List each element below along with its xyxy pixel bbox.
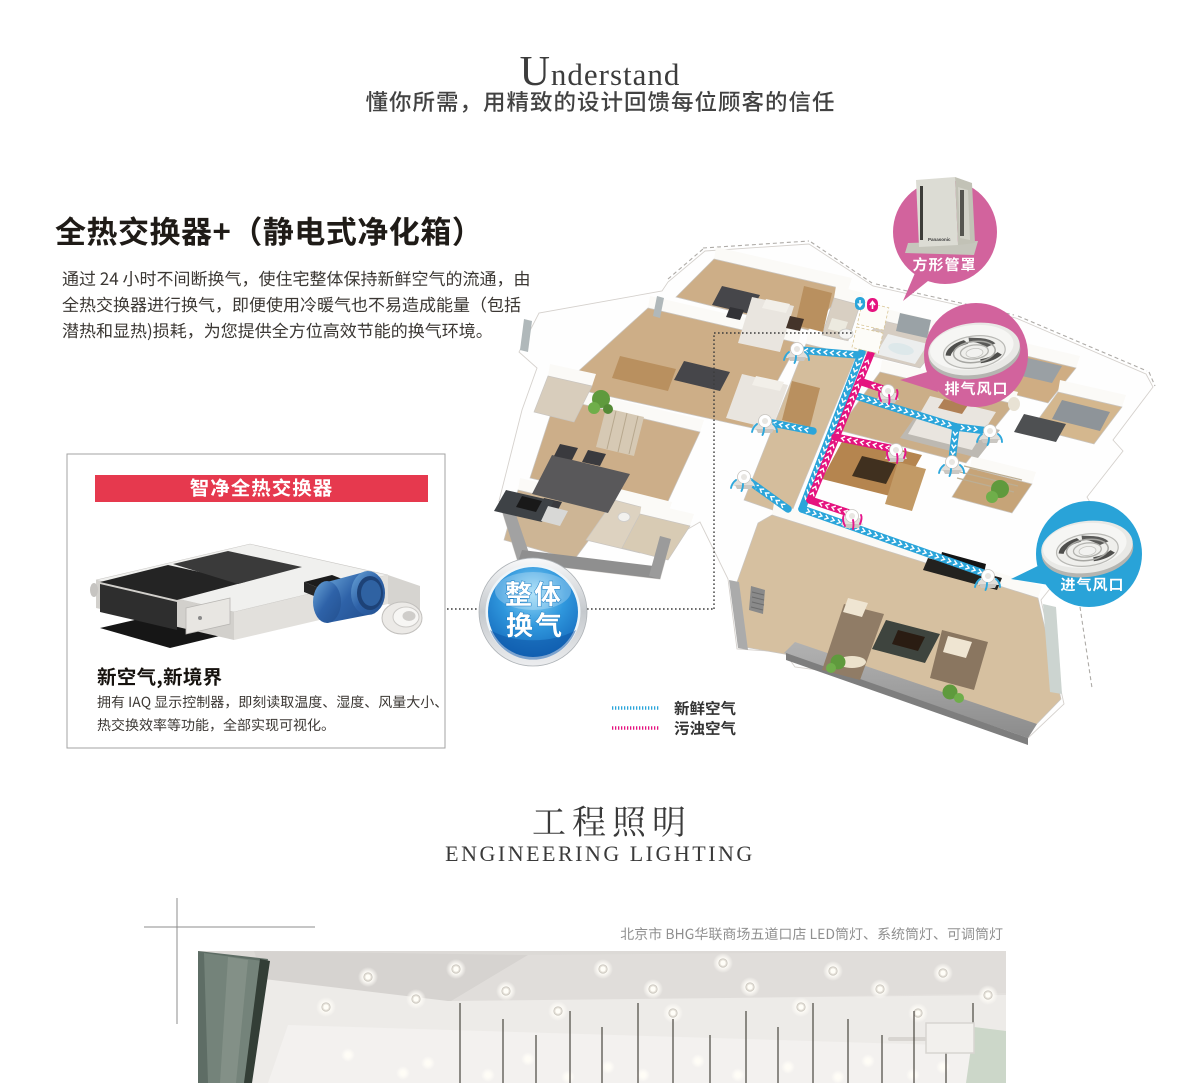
svg-text:Panasonic: Panasonic	[928, 237, 951, 242]
